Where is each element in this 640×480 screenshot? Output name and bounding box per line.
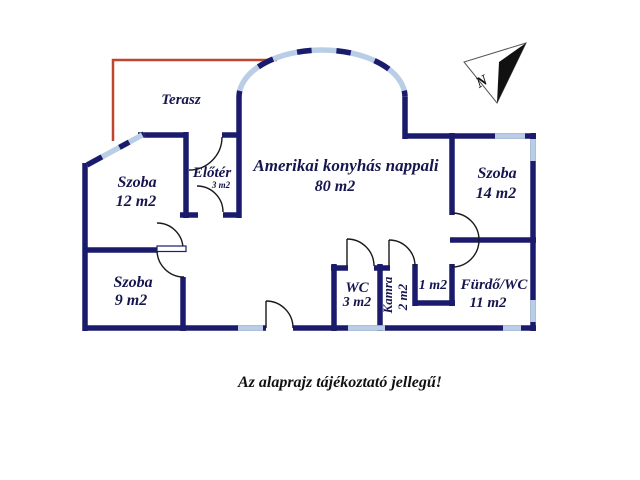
floor-plan-page: N Terasz Szoba 12 m2 Előtér 3 m2 Amerika…: [0, 0, 640, 480]
room-label-wc-name: WC: [345, 280, 369, 296]
room-label-terasz: Terasz: [161, 92, 201, 108]
room-label-szoba14-area: 14 m2: [476, 185, 516, 202]
room-label-szoba12-name: Szoba: [117, 174, 156, 191]
room-label-szoba12-area: 12 m2: [116, 193, 156, 210]
room-label-nappali-name: Amerikai konyhás nappali: [252, 156, 438, 175]
room-label-eloter-name: Előtér: [192, 165, 231, 181]
floor-plan-canvas: N Terasz Szoba 12 m2 Előtér 3 m2 Amerika…: [0, 0, 640, 480]
door-leaf-szoba9: [157, 246, 186, 252]
room-label-kamra-area: 2 m2: [395, 283, 410, 311]
room-label-eloter-area: 3 m2: [211, 180, 231, 190]
room-label-szoba14-name: Szoba: [477, 165, 516, 182]
room-label-szoba9-area: 9 m2: [115, 292, 147, 309]
room-label-furdo-name: Fürdő/WC: [460, 277, 529, 293]
room-label-szoba9-name: Szoba: [113, 274, 152, 291]
disclaimer-text: Az alaprajz tájékoztató jellegű!: [237, 374, 442, 391]
room-label-wc-area: 3 m2: [342, 295, 371, 310]
room-label-furdo-area: 11 m2: [469, 295, 507, 311]
background: [0, 0, 640, 480]
room-label-kamra-name: Kamra: [380, 276, 395, 314]
room-label-nappali-area: 80 m2: [315, 178, 355, 195]
room-label-storage1-area: 1 m2: [419, 278, 447, 293]
